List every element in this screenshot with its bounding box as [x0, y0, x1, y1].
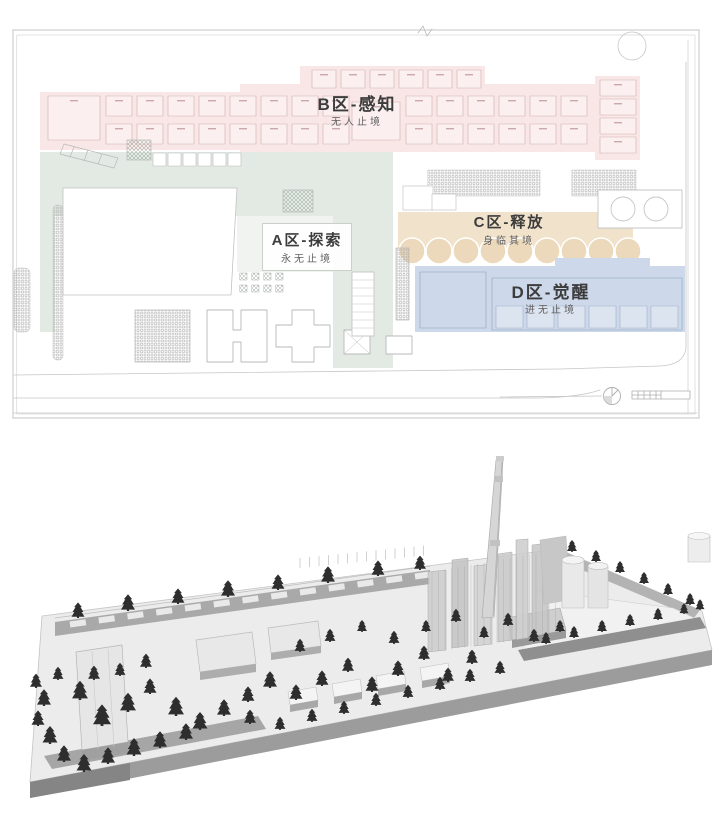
architecture-presentation-page: B区-感知 无人止境 A区-探索 永无止境 C区-释放 身临其境 D区-觉醒 进… [0, 0, 713, 814]
scale-bar-icon [632, 391, 690, 399]
left-building [76, 645, 128, 761]
zone-a-label-box: A区-探索 永无止境 [262, 223, 352, 271]
stair-tower [352, 272, 374, 336]
compass-icon [604, 388, 621, 405]
axonometric-rendering [30, 456, 712, 798]
zone-a-subtitle: 永无止境 [281, 250, 333, 265]
storage-tanks [598, 190, 682, 228]
zone-b-subtitle: 无人止境 [331, 113, 383, 128]
zone-c-label: C区-释放 [474, 211, 545, 232]
zone-a-label: A区-探索 [272, 229, 343, 250]
site-plan [13, 26, 699, 418]
zone-c-subtitle: 身临其境 [483, 232, 535, 247]
zone-d-subtitle: 进无止境 [525, 301, 577, 316]
zone-b-label: B区-感知 [318, 90, 397, 115]
zone-d-label: D区-觉醒 [512, 278, 591, 303]
break-mark [418, 26, 432, 36]
site-circle [618, 32, 646, 60]
